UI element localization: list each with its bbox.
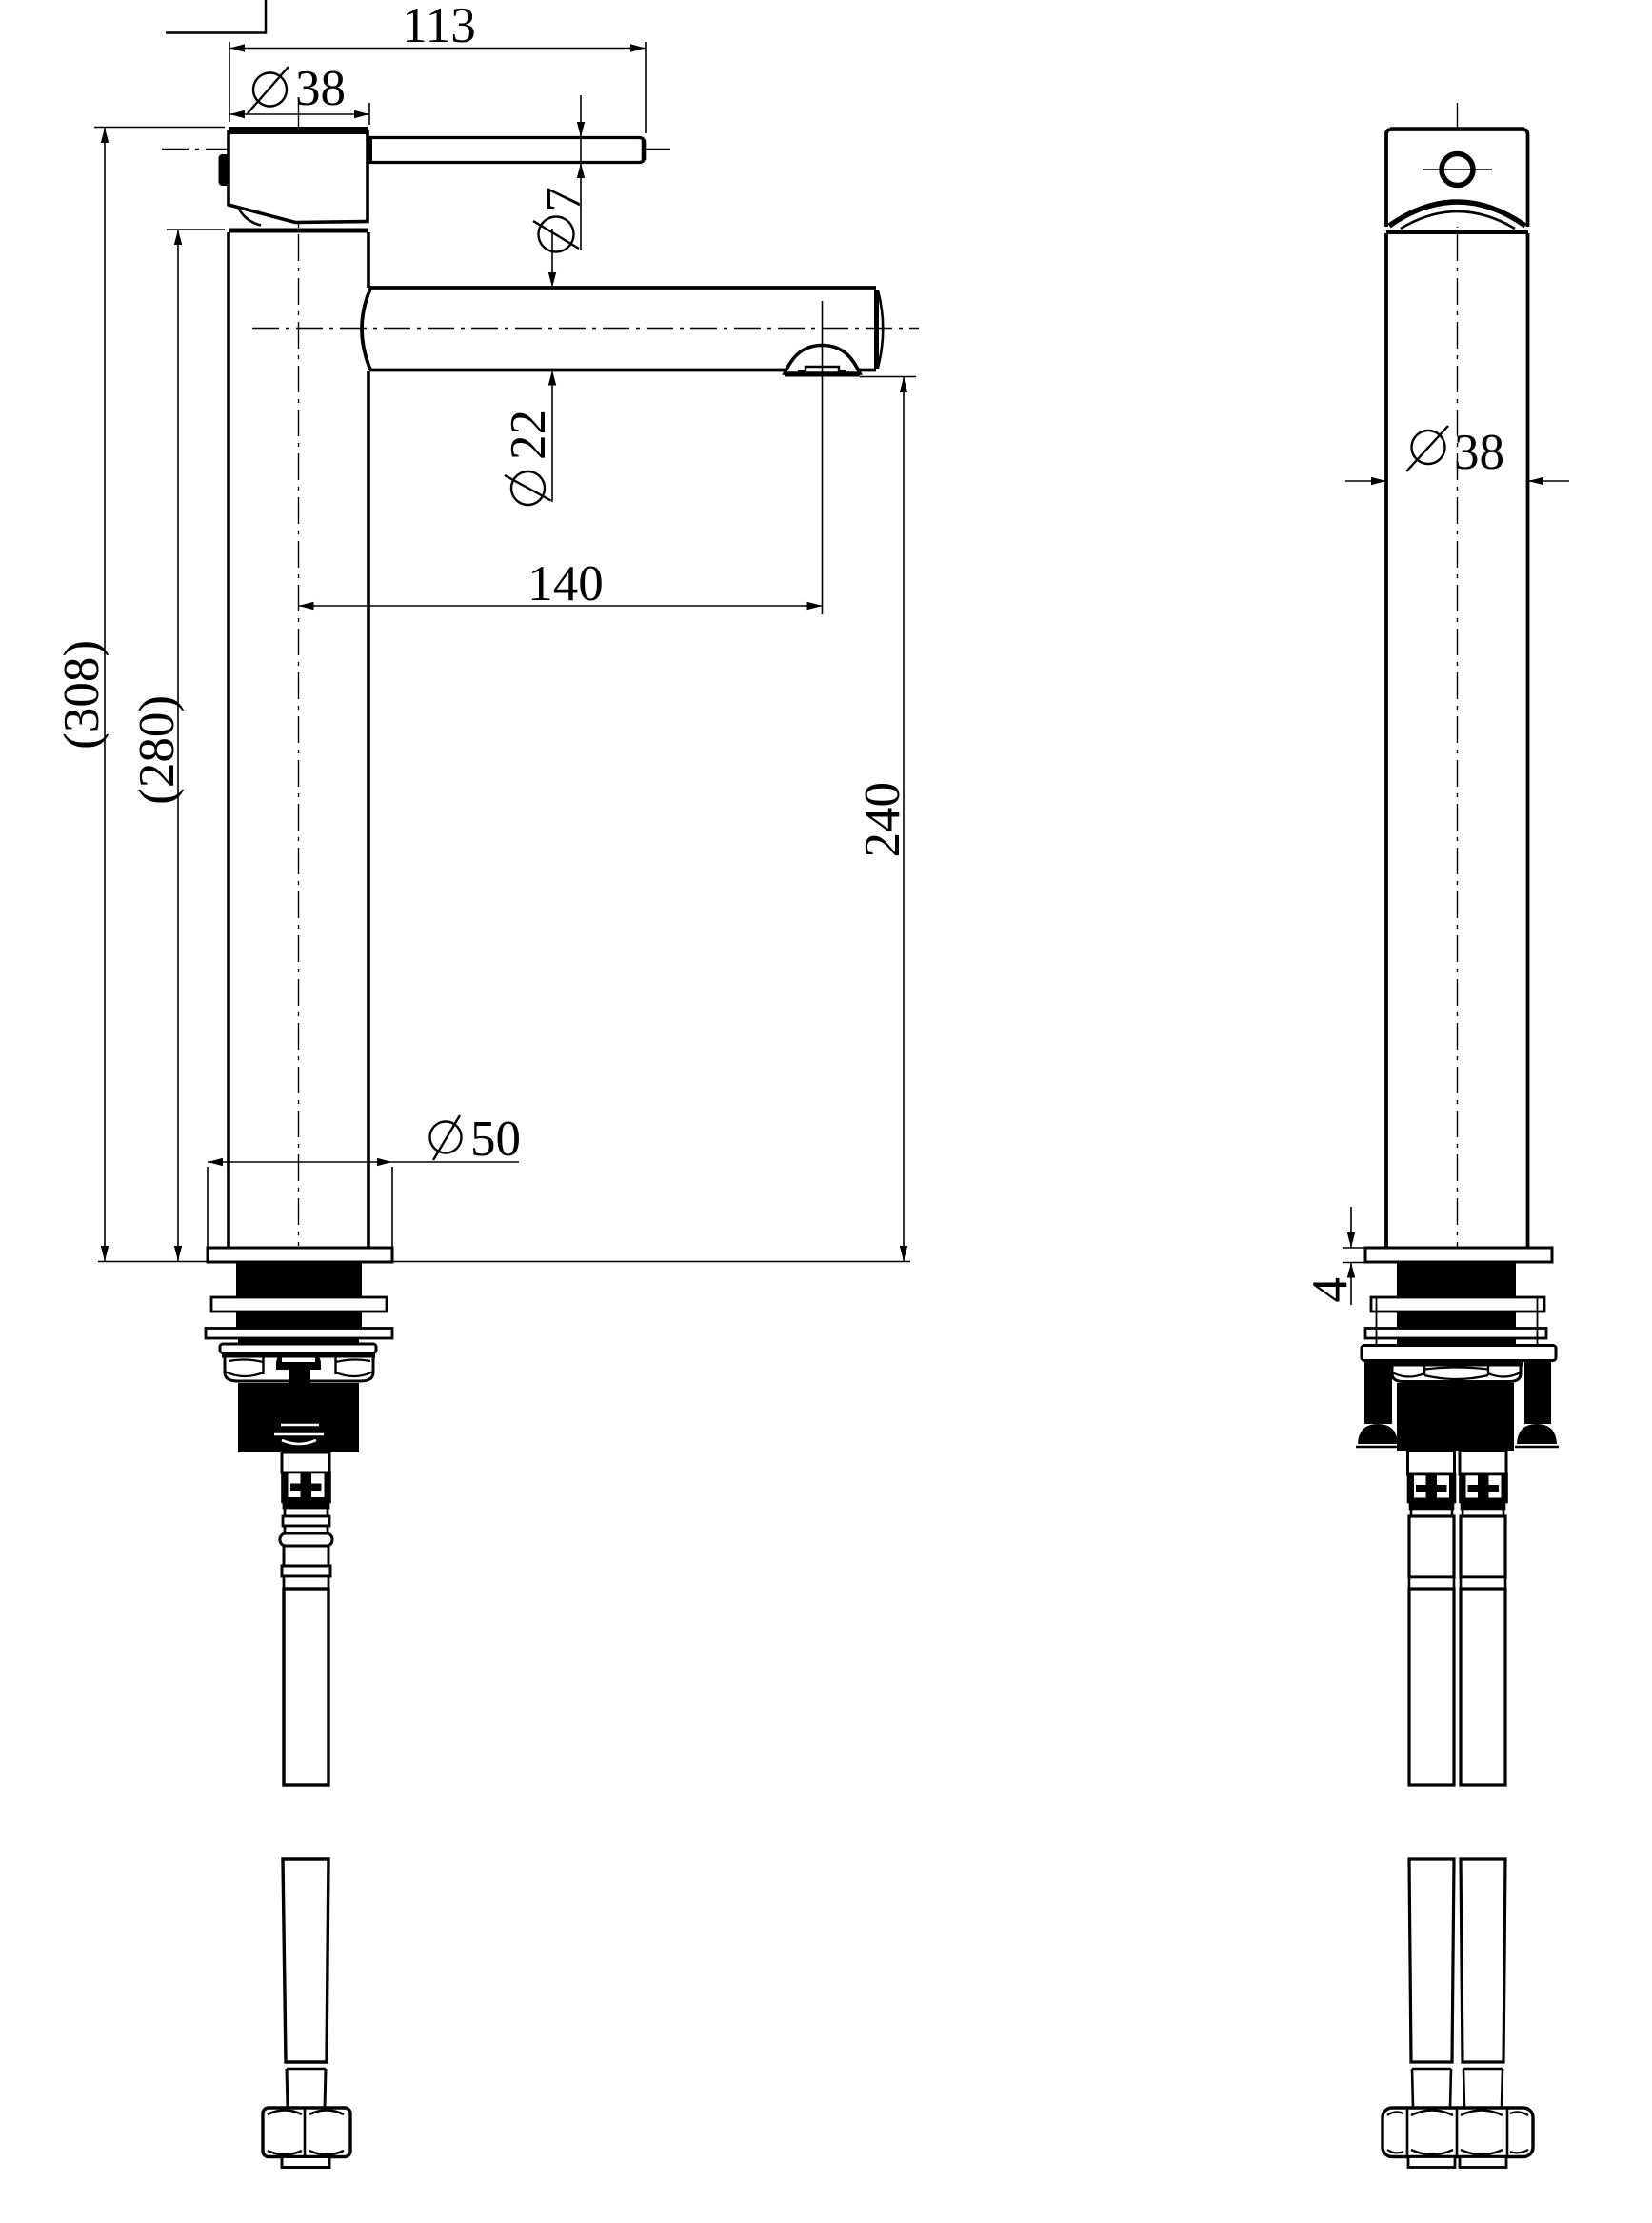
svg-text:(308): (308) xyxy=(54,640,109,750)
svg-text:4: 4 xyxy=(1303,1277,1358,1303)
svg-text:38: 38 xyxy=(295,61,346,116)
svg-text:113: 113 xyxy=(402,0,476,53)
svg-text:38: 38 xyxy=(1454,425,1504,480)
svg-text:50: 50 xyxy=(470,1111,521,1167)
svg-text:(280): (280) xyxy=(129,695,185,805)
svg-text:7: 7 xyxy=(536,187,591,212)
svg-text:140: 140 xyxy=(527,556,604,611)
svg-text:22: 22 xyxy=(501,410,556,460)
svg-text:240: 240 xyxy=(855,782,910,858)
